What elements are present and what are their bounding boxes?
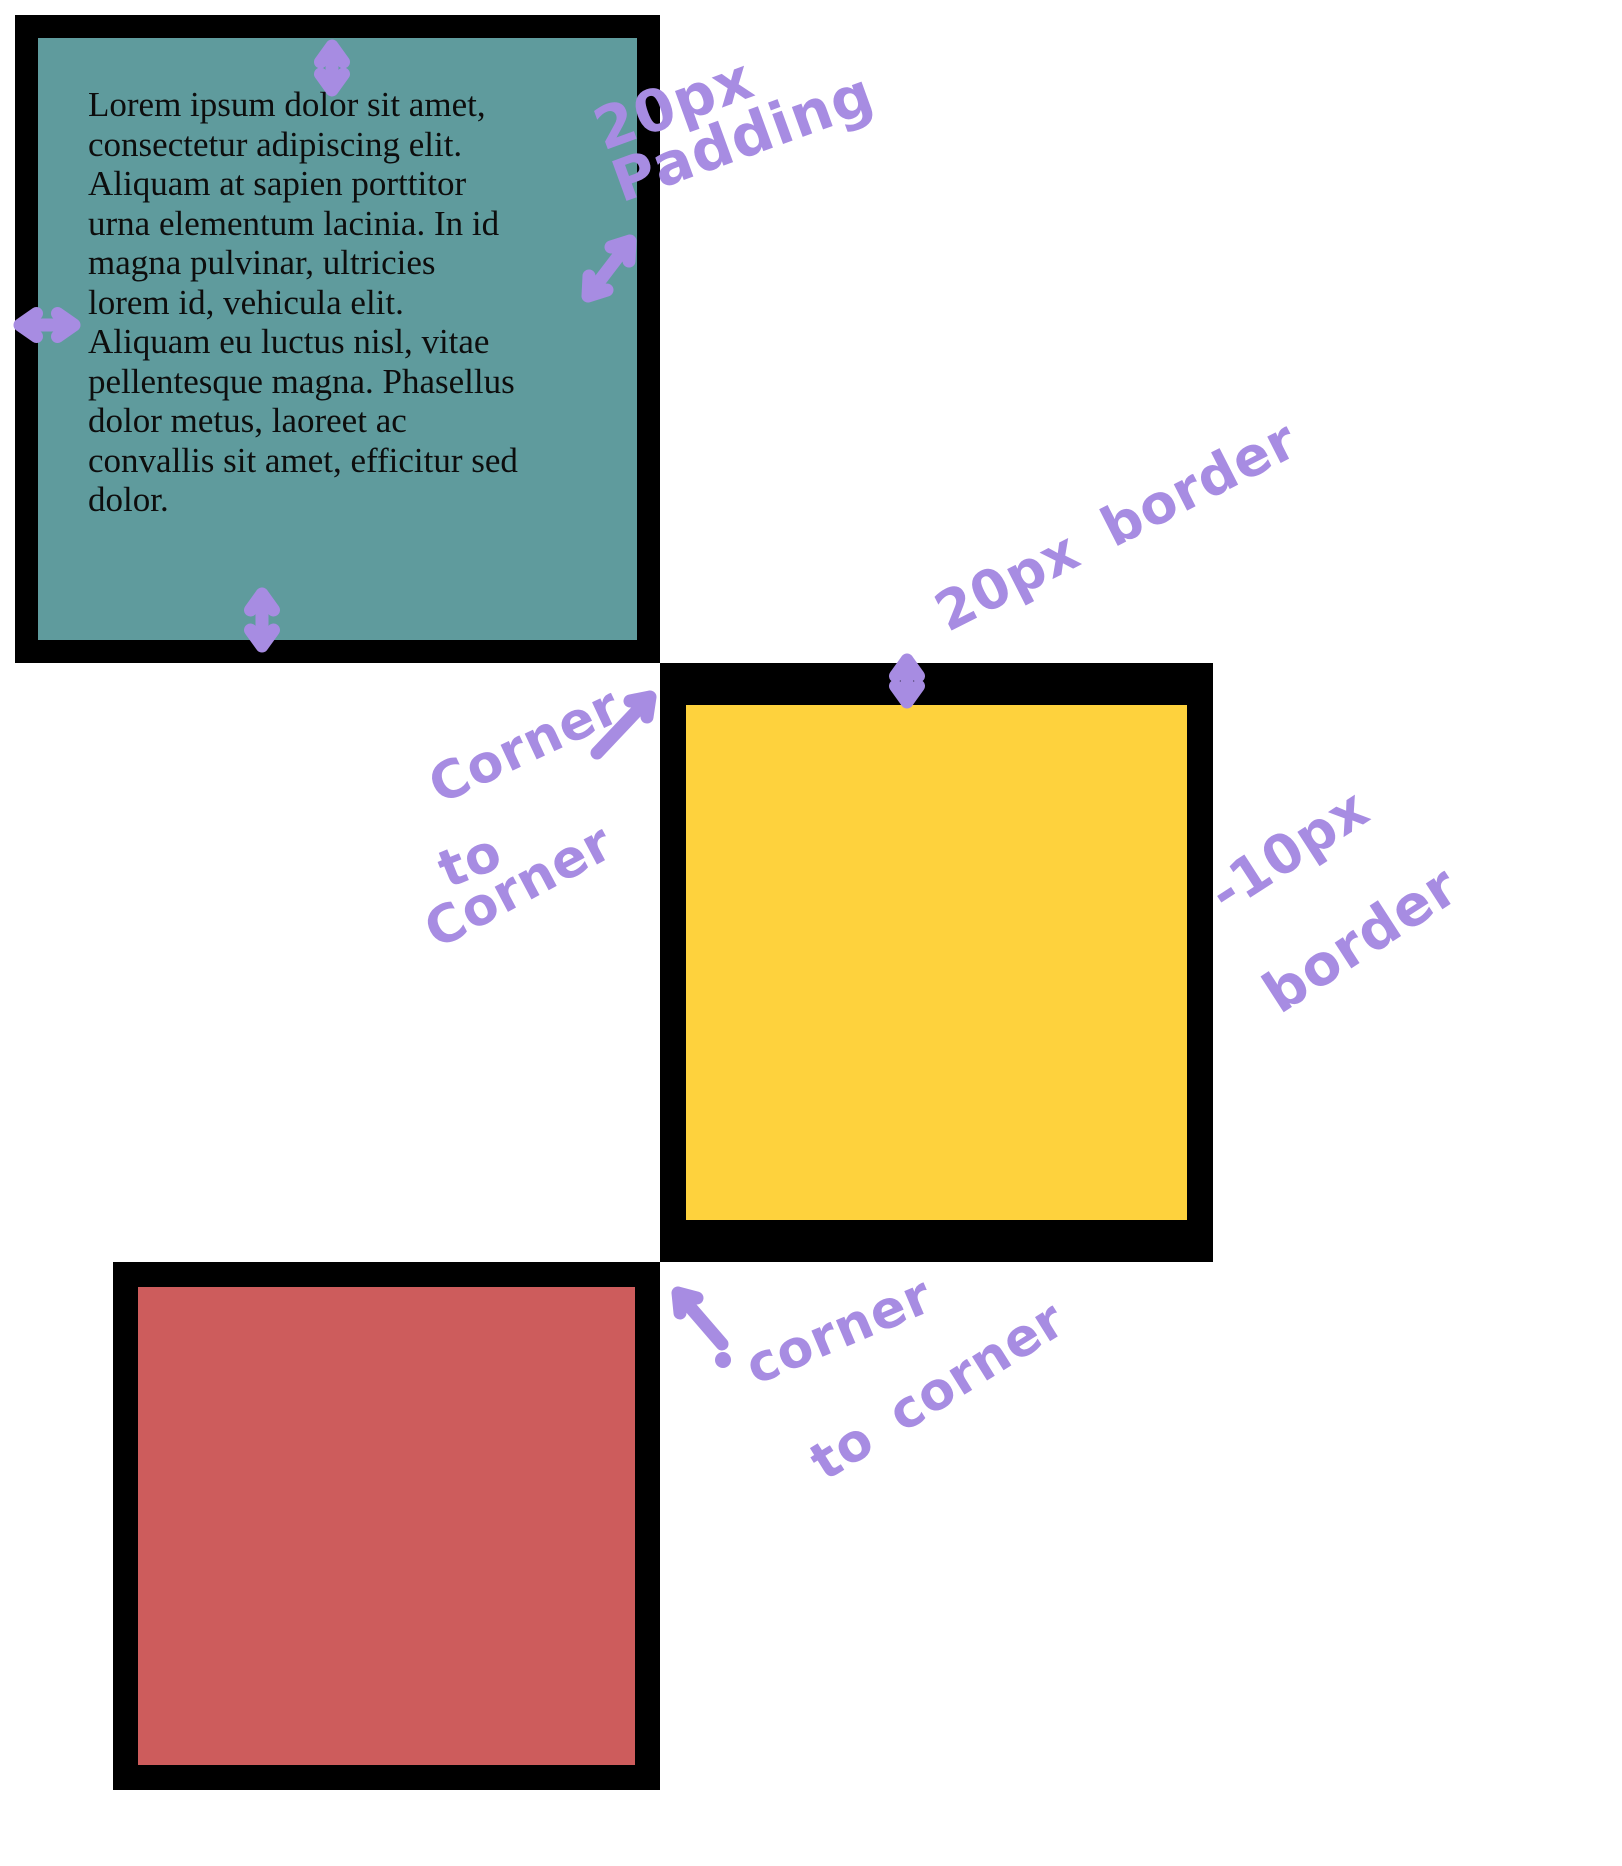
corner-top-word1: Corner — [420, 676, 630, 816]
border-20px-label: 20px border — [925, 408, 1307, 644]
border-10px-label-line1: -10px — [1198, 776, 1380, 925]
page: { "page": { "width": 1622, "height": 186… — [0, 0, 1622, 1866]
red-box — [113, 1262, 660, 1790]
lorem-paragraph: Lorem ipsum dolor sit amet, consectetur … — [88, 85, 611, 520]
corner-pointer-bottom-icon — [678, 1293, 731, 1368]
teal-content-box: Lorem ipsum dolor sit amet, consectetur … — [15, 15, 660, 663]
yellow-border-box — [660, 663, 1213, 1262]
annotation-dot — [715, 1352, 731, 1368]
